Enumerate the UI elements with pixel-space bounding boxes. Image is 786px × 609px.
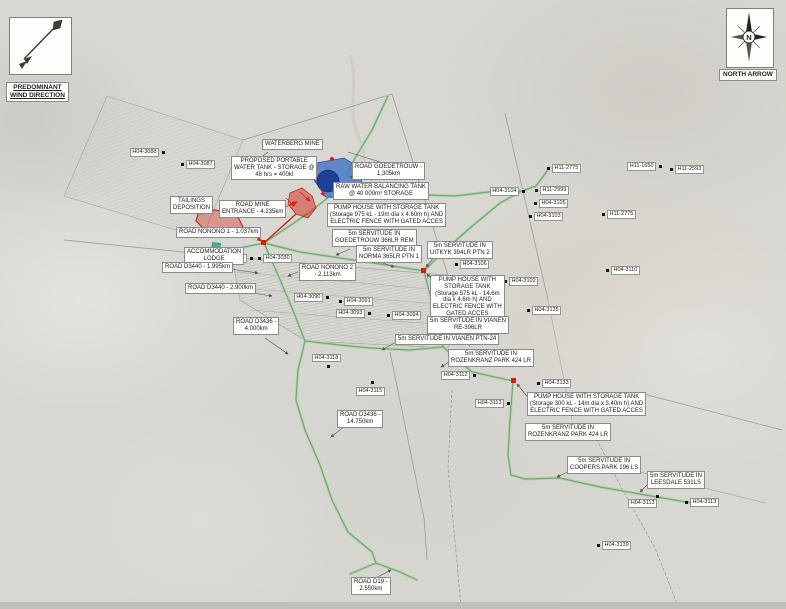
survey-point-icon — [597, 544, 600, 547]
survey-marker-label: H11-2775 — [552, 164, 581, 173]
survey-point-icon — [529, 215, 532, 218]
wind-direction-box — [9, 17, 72, 75]
survey-point-icon — [656, 495, 659, 498]
survey-marker-label: H04-3102 — [509, 277, 538, 286]
map-edge-band — [0, 602, 786, 609]
survey-point-icon — [606, 269, 609, 272]
survey-marker-label: H04-3112 — [441, 371, 470, 380]
annotation-proposed-portable-water-tank: PROPOSED PORTABLEWATER TANK - STORAGE @4… — [231, 156, 317, 180]
survey-marker-label: H04-3115 — [356, 387, 385, 396]
annotation-line: RE-396LR — [430, 325, 506, 332]
survey-point-icon — [534, 202, 537, 205]
annotation-line: PUMP HOUSE WITH STORAGE TANK — [530, 394, 643, 401]
survey-marker-label: H04-3090 — [294, 293, 323, 302]
survey-point-icon — [455, 263, 458, 266]
annotation-line: LEESDALE 531LS — [650, 480, 702, 487]
survey-marker-label: H04-3030 — [263, 254, 292, 263]
annotation-line: ROAD D3440 - 2.900km — [188, 285, 253, 292]
survey-marker-label: H04-3094 — [392, 311, 421, 320]
annotation-line: ACCOMMODATION — [187, 249, 241, 256]
annotation-line: WATER TANK - STORAGE @ — [234, 165, 314, 172]
annotation-line: GOEDETROUW 366LR REM — [335, 238, 414, 245]
annotation-line: ROAD D19 - — [354, 579, 388, 586]
wind-label-line1: PREDOMINANT — [10, 84, 65, 92]
compass-north-letter: N — [746, 33, 751, 42]
survey-marker-label: H04-3091 — [344, 297, 373, 306]
annotation-servitude-rozenkranz-2: 5m SERVITUDE INROZENKRANZ PARK 424 LR — [525, 423, 611, 441]
wind-label-line2: WIND DIRECTION — [10, 92, 65, 100]
annotation-pump-house-300: PUMP HOUSE WITH STORAGE TANK(Storage 300… — [527, 392, 646, 416]
survey-point-icon — [258, 257, 261, 260]
annotation-servitude-norma: 5m SERVITUDE INNORMA 365LR PTN 1 — [356, 245, 422, 263]
annotation-line: 1,305km — [355, 171, 422, 178]
annotation-line: 5m SERVITUDE IN VIANEN — [430, 318, 506, 325]
survey-marker-label: H04-3104 — [490, 187, 519, 196]
annotation-servitude-goedetrouw: 5m SERVITUDE INGOEDETROUW 366LR REM — [332, 229, 417, 247]
annotation-line: 48 hrs = 400kl — [234, 172, 314, 179]
survey-marker-label: H04-3105 — [539, 199, 568, 208]
survey-marker-label: H04-3106 — [460, 260, 489, 269]
survey-marker-label: H04-3103 — [534, 212, 563, 221]
survey-marker-label: H04-3088 — [130, 148, 159, 157]
annotation-line: 5m SERVITUDE IN VIANEN PTN-24 — [398, 336, 496, 343]
annotation-line: (Storage 975 kL - 19m dia x 4.60m h) AND — [330, 212, 443, 219]
annotation-road-d3436-14750: ROAD D3436 -14.750km — [337, 410, 383, 428]
annotation-line: RAW WATER BALANCING TANK — [336, 184, 426, 191]
annotation-road-goedetrouw: ROAD GOEDETROUW -1,305km — [352, 162, 425, 180]
annotation-line: 5m SERVITUDE IN — [335, 231, 414, 238]
annotation-line: ROZENKRANZ PARK 424 LR — [451, 358, 531, 365]
survey-marker-label: H11-1650 — [627, 162, 656, 171]
survey-point-icon — [326, 296, 329, 299]
annotation-road-mine-entrance: ROAD MINEENTRANCE - 4.235km — [219, 200, 286, 218]
survey-point-icon — [547, 167, 550, 170]
annotation-line: 14.750km — [340, 419, 380, 426]
annotation-road-d3440-1995: ROAD D3440 - 1.995km — [162, 262, 233, 273]
wind-direction-label: PREDOMINANT WIND DIRECTION — [6, 82, 69, 102]
annotation-line: @ 40 000m³ STORAGE — [336, 191, 426, 198]
wind-arrow-icon — [10, 18, 69, 72]
annotation-servitude-vianen-re: 5m SERVITUDE IN VIANENRE-396LR — [427, 316, 509, 334]
survey-point-icon — [670, 168, 673, 171]
annotation-line: 2.550km — [354, 586, 388, 593]
annotation-line: ROAD D3436 - — [236, 319, 276, 326]
annotation-servitude-uitkyk: 5m SERVITUDE INUITKYK 394LR PTN 2 — [427, 241, 493, 259]
north-arrow-box: N — [726, 8, 774, 68]
survey-marker-label: H04-3113 — [690, 498, 719, 507]
annotation-line: (Storage 300 kL - 14m dia x 3.40m h) AND — [530, 401, 643, 408]
annotation-line: (Storage 575 kL - 14.6m — [433, 291, 502, 298]
annotation-line: ROAD D3436 - — [340, 412, 380, 419]
annotation-line: ROAD D3440 - 1.995km — [165, 264, 230, 271]
survey-point-icon — [250, 257, 253, 260]
annotation-servitude-coopers: 5m SERVITUDE INCOOPERS PARK 196 LS — [567, 456, 641, 474]
annotation-line: 5m SERVITUDE IN — [451, 351, 531, 358]
survey-point-icon — [327, 365, 330, 368]
annotation-raw-water-balancing-tank: RAW WATER BALANCING TANK@ 40 000m³ STORA… — [333, 182, 429, 200]
annotation-road-d3436-4000: ROAD D3436 -4.000km — [233, 317, 279, 335]
survey-marker-label: H11-2999 — [540, 186, 569, 195]
annotation-line: UITKYK 394LR PTN 2 — [430, 250, 490, 257]
survey-marker-label: H11-2775 — [607, 210, 636, 219]
annotation-line: PUMP HOUSE WITH STORAGE TANK — [330, 205, 443, 212]
annotation-road-d19: ROAD D19 -2.550km — [351, 577, 391, 595]
annotation-servitude-vianen-ptn24: 5m SERVITUDE IN VIANEN PTN-24 — [395, 334, 499, 345]
annotation-waterberg-mine: WATERBERG MINE — [262, 139, 323, 150]
survey-point-icon — [527, 309, 530, 312]
survey-marker-label: H04-3087 — [186, 160, 215, 169]
annotation-line: 5m SERVITUDE IN — [528, 425, 608, 432]
annotation-road-d3440-2900: ROAD D3440 - 2.900km — [185, 283, 256, 294]
survey-point-icon — [535, 189, 538, 192]
survey-point-icon — [368, 312, 371, 315]
annotation-line: TAILINGS — [173, 198, 210, 205]
survey-marker-label: H04-3113 — [628, 499, 657, 508]
north-arrow-label: NORTH ARROW — [719, 69, 777, 81]
survey-point-icon — [659, 165, 662, 168]
survey-point-icon — [685, 501, 688, 504]
survey-point-icon — [387, 314, 390, 317]
survey-marker-label: H04-3113 — [475, 399, 504, 408]
annotation-line: PUMP HOUSE WITH — [433, 277, 502, 284]
survey-marker-label: H04-3110 — [611, 266, 640, 275]
annotation-line: ROAD NONONO 2 — [302, 265, 353, 272]
annotation-line: 5m SERVITUDE IN — [430, 243, 490, 250]
survey-marker-label: H04-3135 — [532, 306, 561, 315]
annotation-road-nonono-2: ROAD NONONO 2- 2.113km — [299, 263, 356, 281]
annotation-line: DEPOSITION — [173, 205, 210, 212]
survey-point-icon — [522, 190, 525, 193]
annotation-line: 5m SERVITUDE IN — [359, 247, 419, 254]
annotation-tailings-deposition: TAILINGSDEPOSITION — [170, 196, 213, 214]
survey-point-icon — [537, 382, 540, 385]
survey-point-icon — [507, 402, 510, 405]
survey-point-icon — [339, 300, 342, 303]
annotation-pump-house-975: PUMP HOUSE WITH STORAGE TANK(Storage 975… — [327, 203, 446, 227]
annotation-line: ROAD NONONO 1 - 1.037km — [179, 229, 258, 236]
site-servitude-map: WATERBERG MINEPROPOSED PORTABLEWATER TAN… — [0, 0, 786, 609]
survey-point-icon — [371, 381, 374, 384]
compass-rose-icon: N — [727, 9, 771, 65]
annotation-line: ROAD GOEDETROUW - — [355, 164, 422, 171]
survey-point-icon — [181, 163, 184, 166]
survey-marker-label: H04-3139 — [602, 541, 631, 550]
annotation-line: 4.000km — [236, 326, 276, 333]
annotation-road-nonono-1: ROAD NONONO 1 - 1.037km — [176, 227, 261, 238]
survey-point-icon — [473, 374, 476, 377]
annotation-line: ELECTRIC FENCE WITH GATED ACCES — [330, 219, 443, 226]
annotation-pump-house-575: PUMP HOUSE WITHSTORAGE TANK(Storage 575 … — [430, 275, 505, 320]
annotation-line: NORMA 365LR PTN 1 — [359, 254, 419, 261]
map-vector-layer — [0, 0, 786, 609]
annotation-line: 5m SERVITUDE IN — [570, 458, 638, 465]
annotation-line: dia x 4.6m h) AND — [433, 297, 502, 304]
annotation-line: ELECTRIC FENCE WITH — [433, 304, 502, 311]
annotation-line: STORAGE TANK — [433, 284, 502, 291]
annotation-servitude-rozenkranz-1: 5m SERVITUDE INROZENKRANZ PARK 424 LR — [448, 349, 534, 367]
annotation-line: PROPOSED PORTABLE — [234, 158, 314, 165]
survey-marker-label: H04-3093 — [336, 309, 365, 318]
survey-marker-label: H04-3133 — [542, 379, 571, 388]
annotation-line: 5m SERVITUDE IN — [650, 473, 702, 480]
survey-marker-label: H11-2593 — [675, 165, 704, 174]
annotation-line: - 2.113km — [302, 272, 353, 279]
annotation-line: ELECTRIC FENCE WITH GATED ACCES — [530, 408, 643, 415]
annotation-line: ENTRANCE - 4.235km — [222, 209, 283, 216]
annotation-line: WATERBERG MINE — [265, 141, 320, 148]
survey-point-icon — [602, 213, 605, 216]
survey-point-icon — [162, 151, 165, 154]
survey-marker-label: H04-3118 — [312, 354, 341, 363]
annotation-servitude-leesdale: 5m SERVITUDE INLEESDALE 531LS — [647, 471, 705, 489]
annotation-line: ROAD MINE — [222, 202, 283, 209]
annotation-line: COOPERS PARK 196 LS — [570, 465, 638, 472]
annotation-line: ROZENKRANZ PARK 424 LR — [528, 432, 608, 439]
